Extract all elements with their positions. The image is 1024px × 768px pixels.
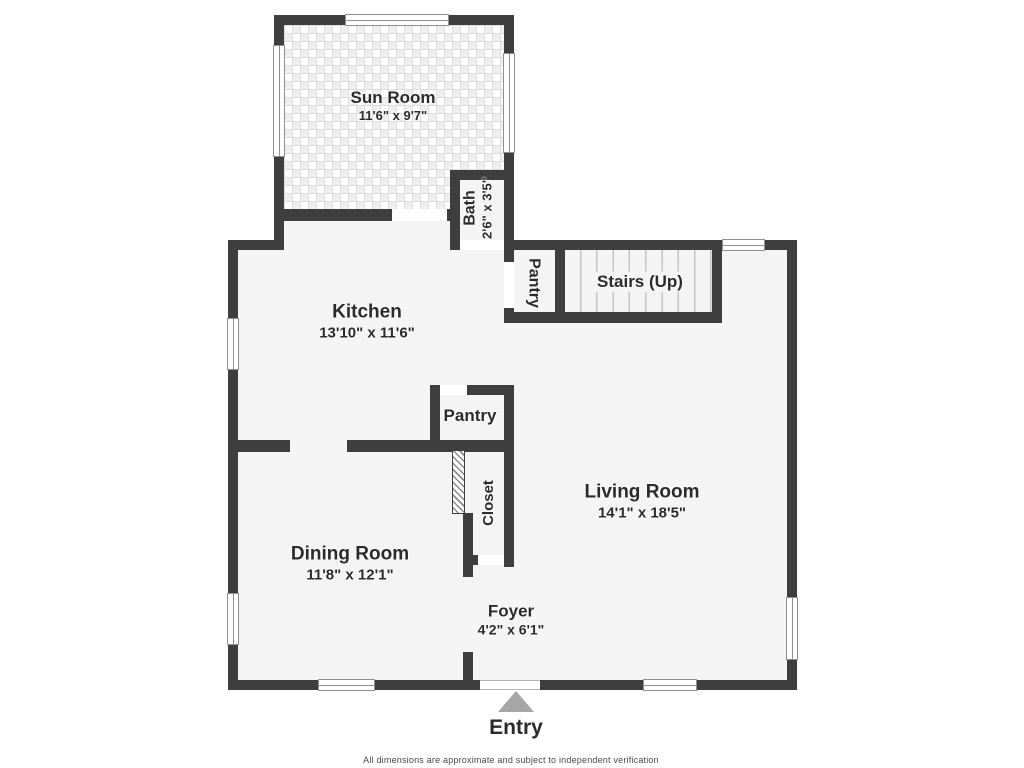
bath-wall-bottom-corner — [450, 240, 460, 250]
sun-room-wall-right-bottom — [504, 153, 514, 250]
pantry-upper-wall-left-top — [504, 250, 514, 262]
closet-doorway — [478, 555, 504, 565]
foyer-name: Foyer — [488, 601, 534, 621]
room-label-pantry-upper: Pantry — [524, 258, 543, 308]
bath-name: Bath — [461, 190, 480, 226]
wall-bottom-4 — [697, 680, 797, 690]
kitchen-floor-extension — [284, 221, 454, 251]
room-label-pantry-lower: Pantry — [444, 406, 497, 426]
dining-window-bottom — [318, 679, 375, 691]
room-label-foyer: Foyer 4'2" x 6'1" — [478, 601, 545, 638]
spine-wall-lower — [504, 385, 514, 567]
closet-sliding-door — [452, 450, 465, 514]
sun-room-window-top — [345, 14, 449, 26]
entry-doorway — [480, 680, 540, 690]
wall-top-east-1 — [514, 240, 722, 250]
pantry-upper-name: Pantry — [524, 258, 543, 308]
room-label-dining-room: Dining Room 11'8" x 12'1" — [291, 544, 409, 585]
kitchen-dims: 13'10" x 11'6" — [319, 324, 415, 342]
sun-room-wall-left-bottom — [274, 157, 284, 250]
dining-room-dims: 11'8" x 12'1" — [306, 566, 393, 584]
pantry-lower-name: Pantry — [444, 406, 497, 426]
living-room-name: Living Room — [584, 482, 699, 505]
foyer-wall-stub — [463, 652, 473, 690]
living-room-window-bottom — [643, 679, 697, 691]
room-label-sun-room: Sun Room 11'6" x 9'7" — [351, 88, 436, 124]
bath-dims: 2'6" x 3'5" — [480, 177, 496, 239]
room-label-stairs: Stairs (Up) — [593, 272, 687, 292]
sun-room-doorway — [392, 209, 447, 221]
kitchen-name: Kitchen — [332, 302, 402, 325]
sun-room-window-left — [273, 45, 285, 157]
sun-room-wall-right-top — [504, 15, 514, 53]
pantry-lower-doorway — [440, 385, 467, 395]
foyer-dims: 4'2" x 6'1" — [478, 622, 545, 639]
sun-room-name: Sun Room — [351, 88, 436, 108]
bath-wall-left — [450, 170, 460, 250]
floor-plan: Sun Room 11'6" x 9'7" Bath 2'6" x 3'5" P… — [0, 0, 1024, 768]
dining-room-name: Dining Room — [291, 544, 409, 567]
wall-top-east-2 — [765, 240, 797, 250]
stairs-name: Stairs (Up) — [593, 272, 687, 292]
sun-room-dims: 11'6" x 9'7" — [359, 108, 427, 124]
sun-room-window-right — [503, 53, 515, 153]
living-room-window-right — [786, 597, 798, 660]
living-room-window-top — [722, 239, 765, 251]
stairs-wall-bottom — [504, 312, 722, 323]
divider-wall-west — [228, 440, 290, 452]
sun-room-wall-top-west — [274, 15, 345, 25]
wall-bottom-1 — [228, 680, 318, 690]
living-room-dims: 14'1" x 18'5" — [598, 504, 686, 522]
room-label-bath: Bath 2'6" x 3'5" — [461, 177, 496, 239]
kitchen-window-left — [227, 318, 239, 370]
entry-label: Entry — [489, 716, 543, 740]
pantry-upper-doorway — [504, 262, 514, 308]
closet-name: Closet — [480, 480, 498, 526]
room-label-living-room: Living Room 14'1" x 18'5" — [584, 482, 699, 523]
pantry-lower-wall-left — [430, 385, 440, 452]
disclaimer-text: All dimensions are approximate and subje… — [363, 755, 659, 765]
closet-wall-bottom — [463, 555, 478, 565]
bath-doorway — [460, 240, 504, 250]
room-label-closet: Closet — [480, 480, 498, 526]
closet-wall-left-stub — [463, 513, 473, 577]
sun-room-wall-bottom — [274, 209, 392, 221]
room-label-kitchen: Kitchen 13'10" x 11'6" — [319, 302, 415, 343]
dining-window-left — [227, 593, 239, 645]
entry-arrow-icon — [498, 691, 534, 712]
wall-bottom-3 — [540, 680, 643, 690]
